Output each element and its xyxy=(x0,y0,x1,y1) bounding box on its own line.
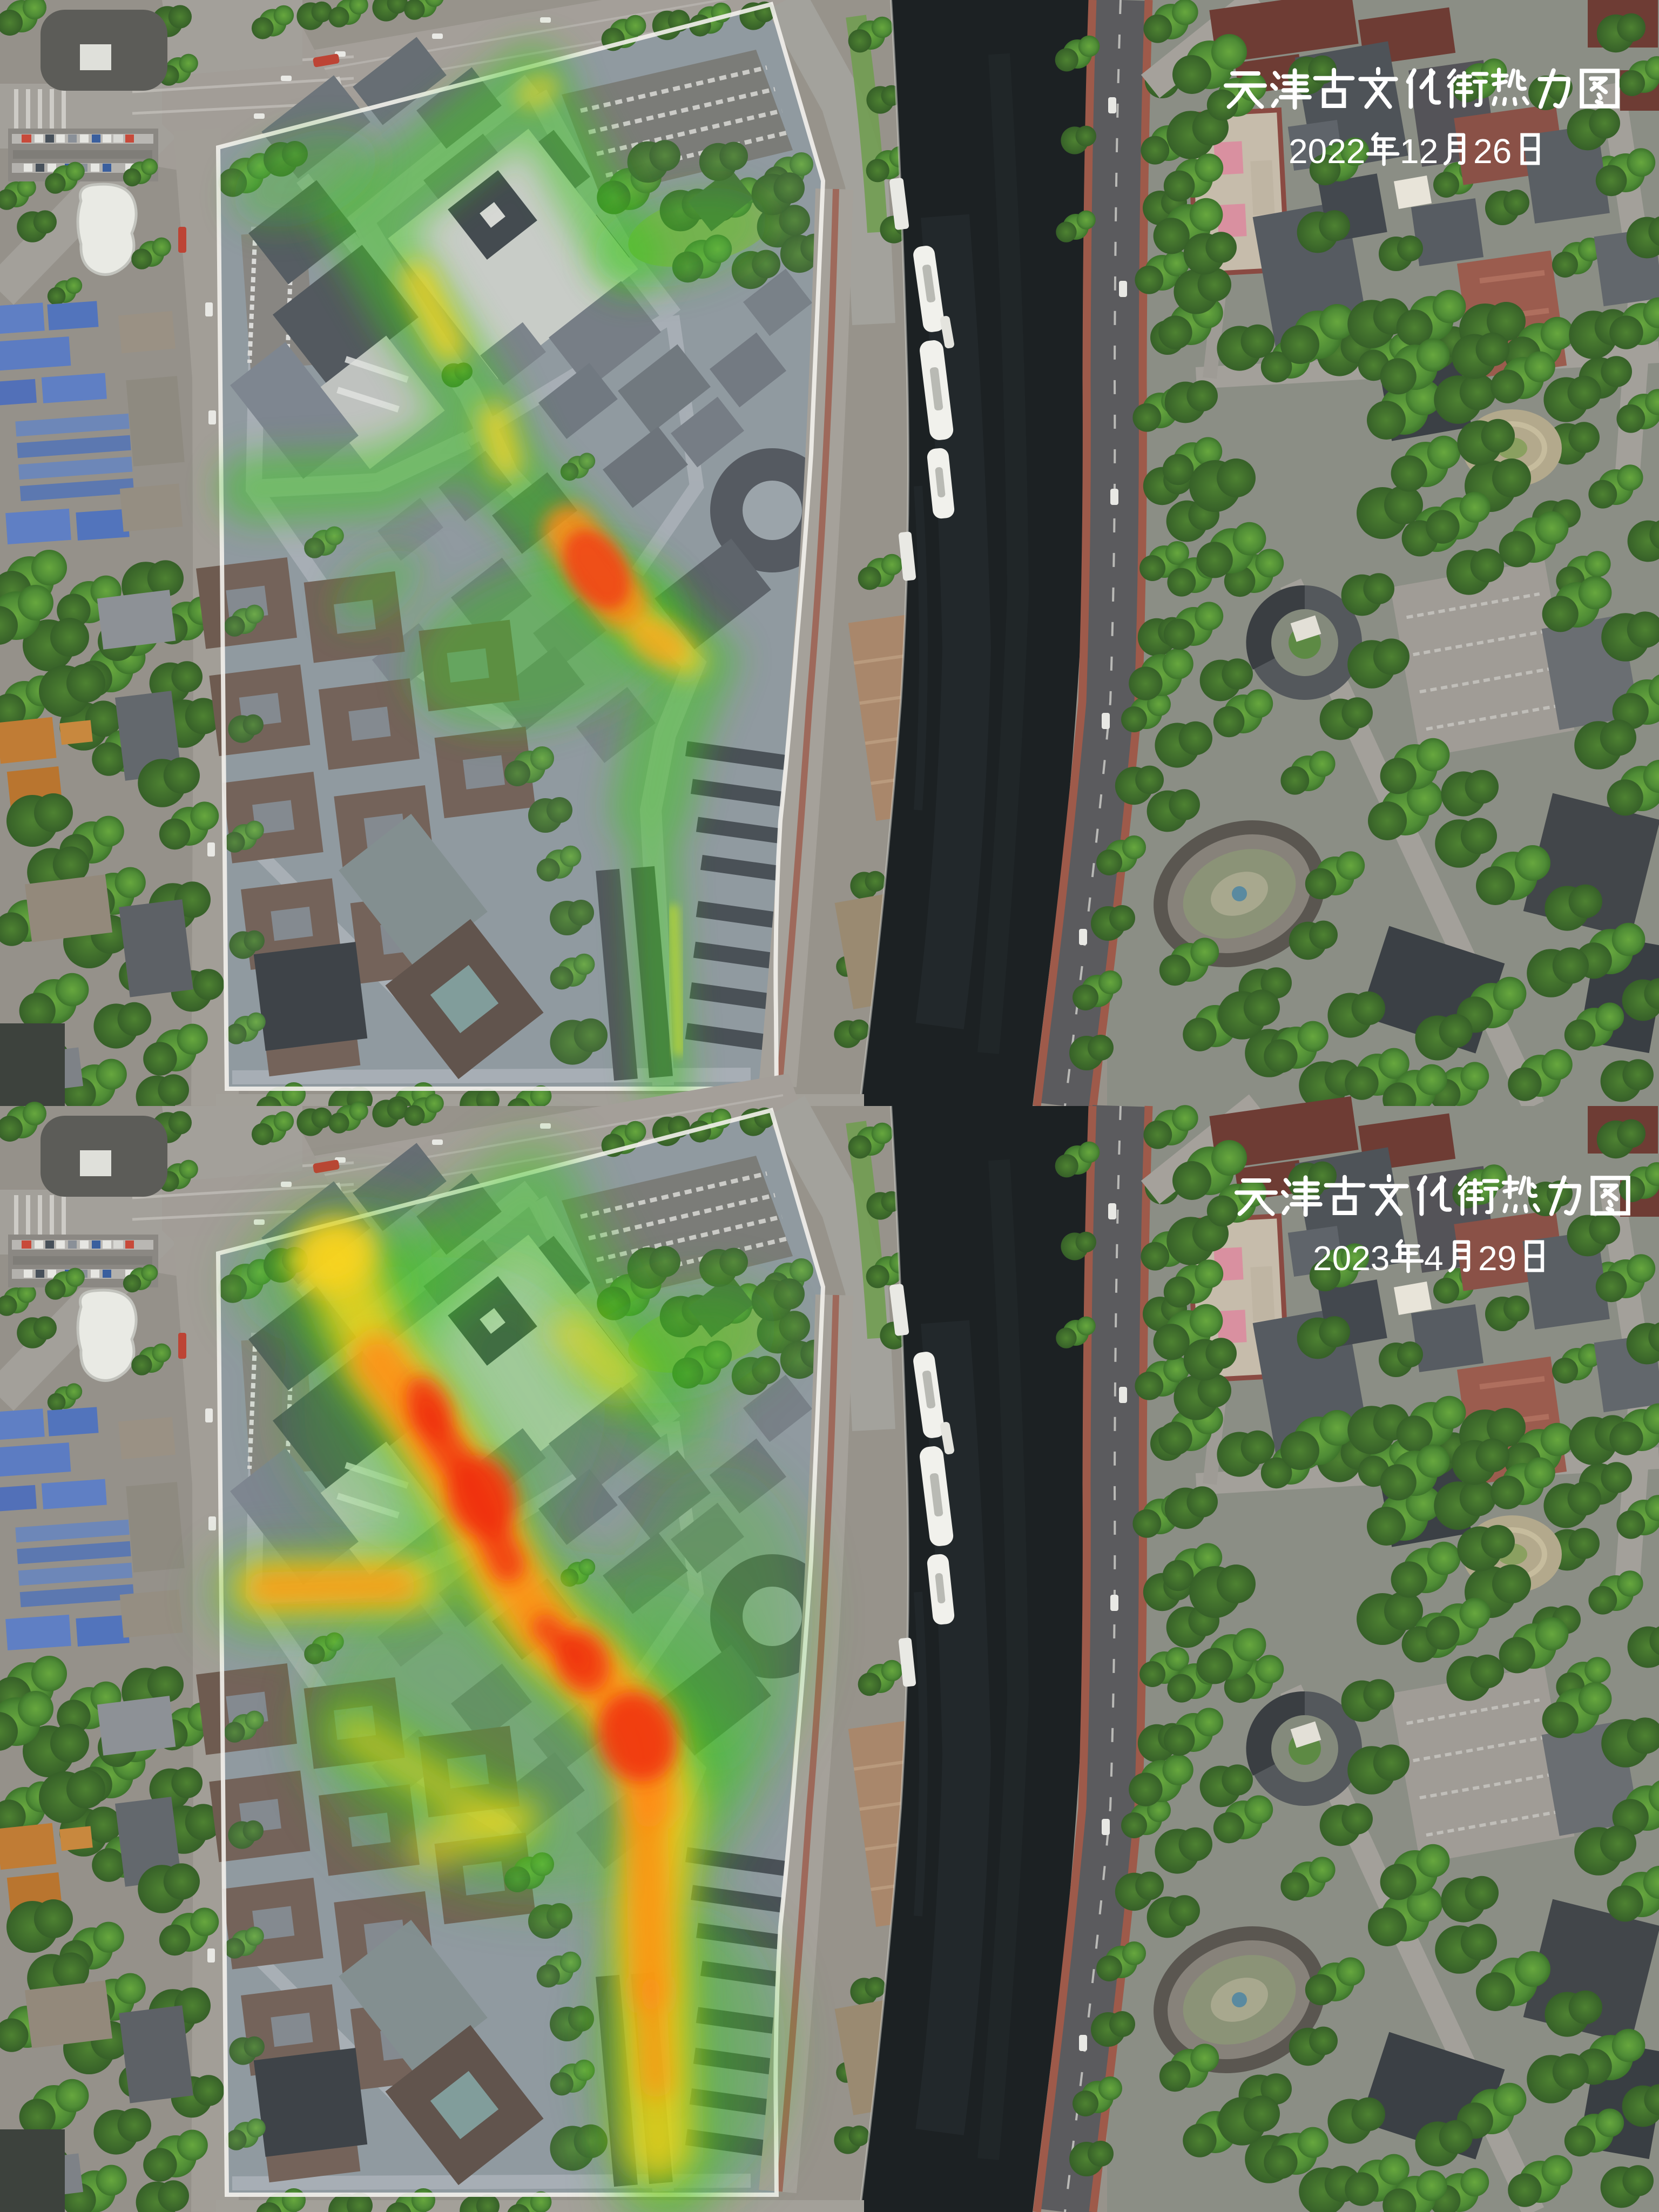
svg-text:4: 4 xyxy=(1424,1239,1444,1278)
svg-text:2022: 2022 xyxy=(1289,132,1365,171)
svg-text:2023: 2023 xyxy=(1313,1239,1390,1278)
svg-text:12: 12 xyxy=(1400,132,1438,171)
svg-text:26: 26 xyxy=(1473,132,1512,171)
svg-text:29: 29 xyxy=(1478,1239,1516,1278)
